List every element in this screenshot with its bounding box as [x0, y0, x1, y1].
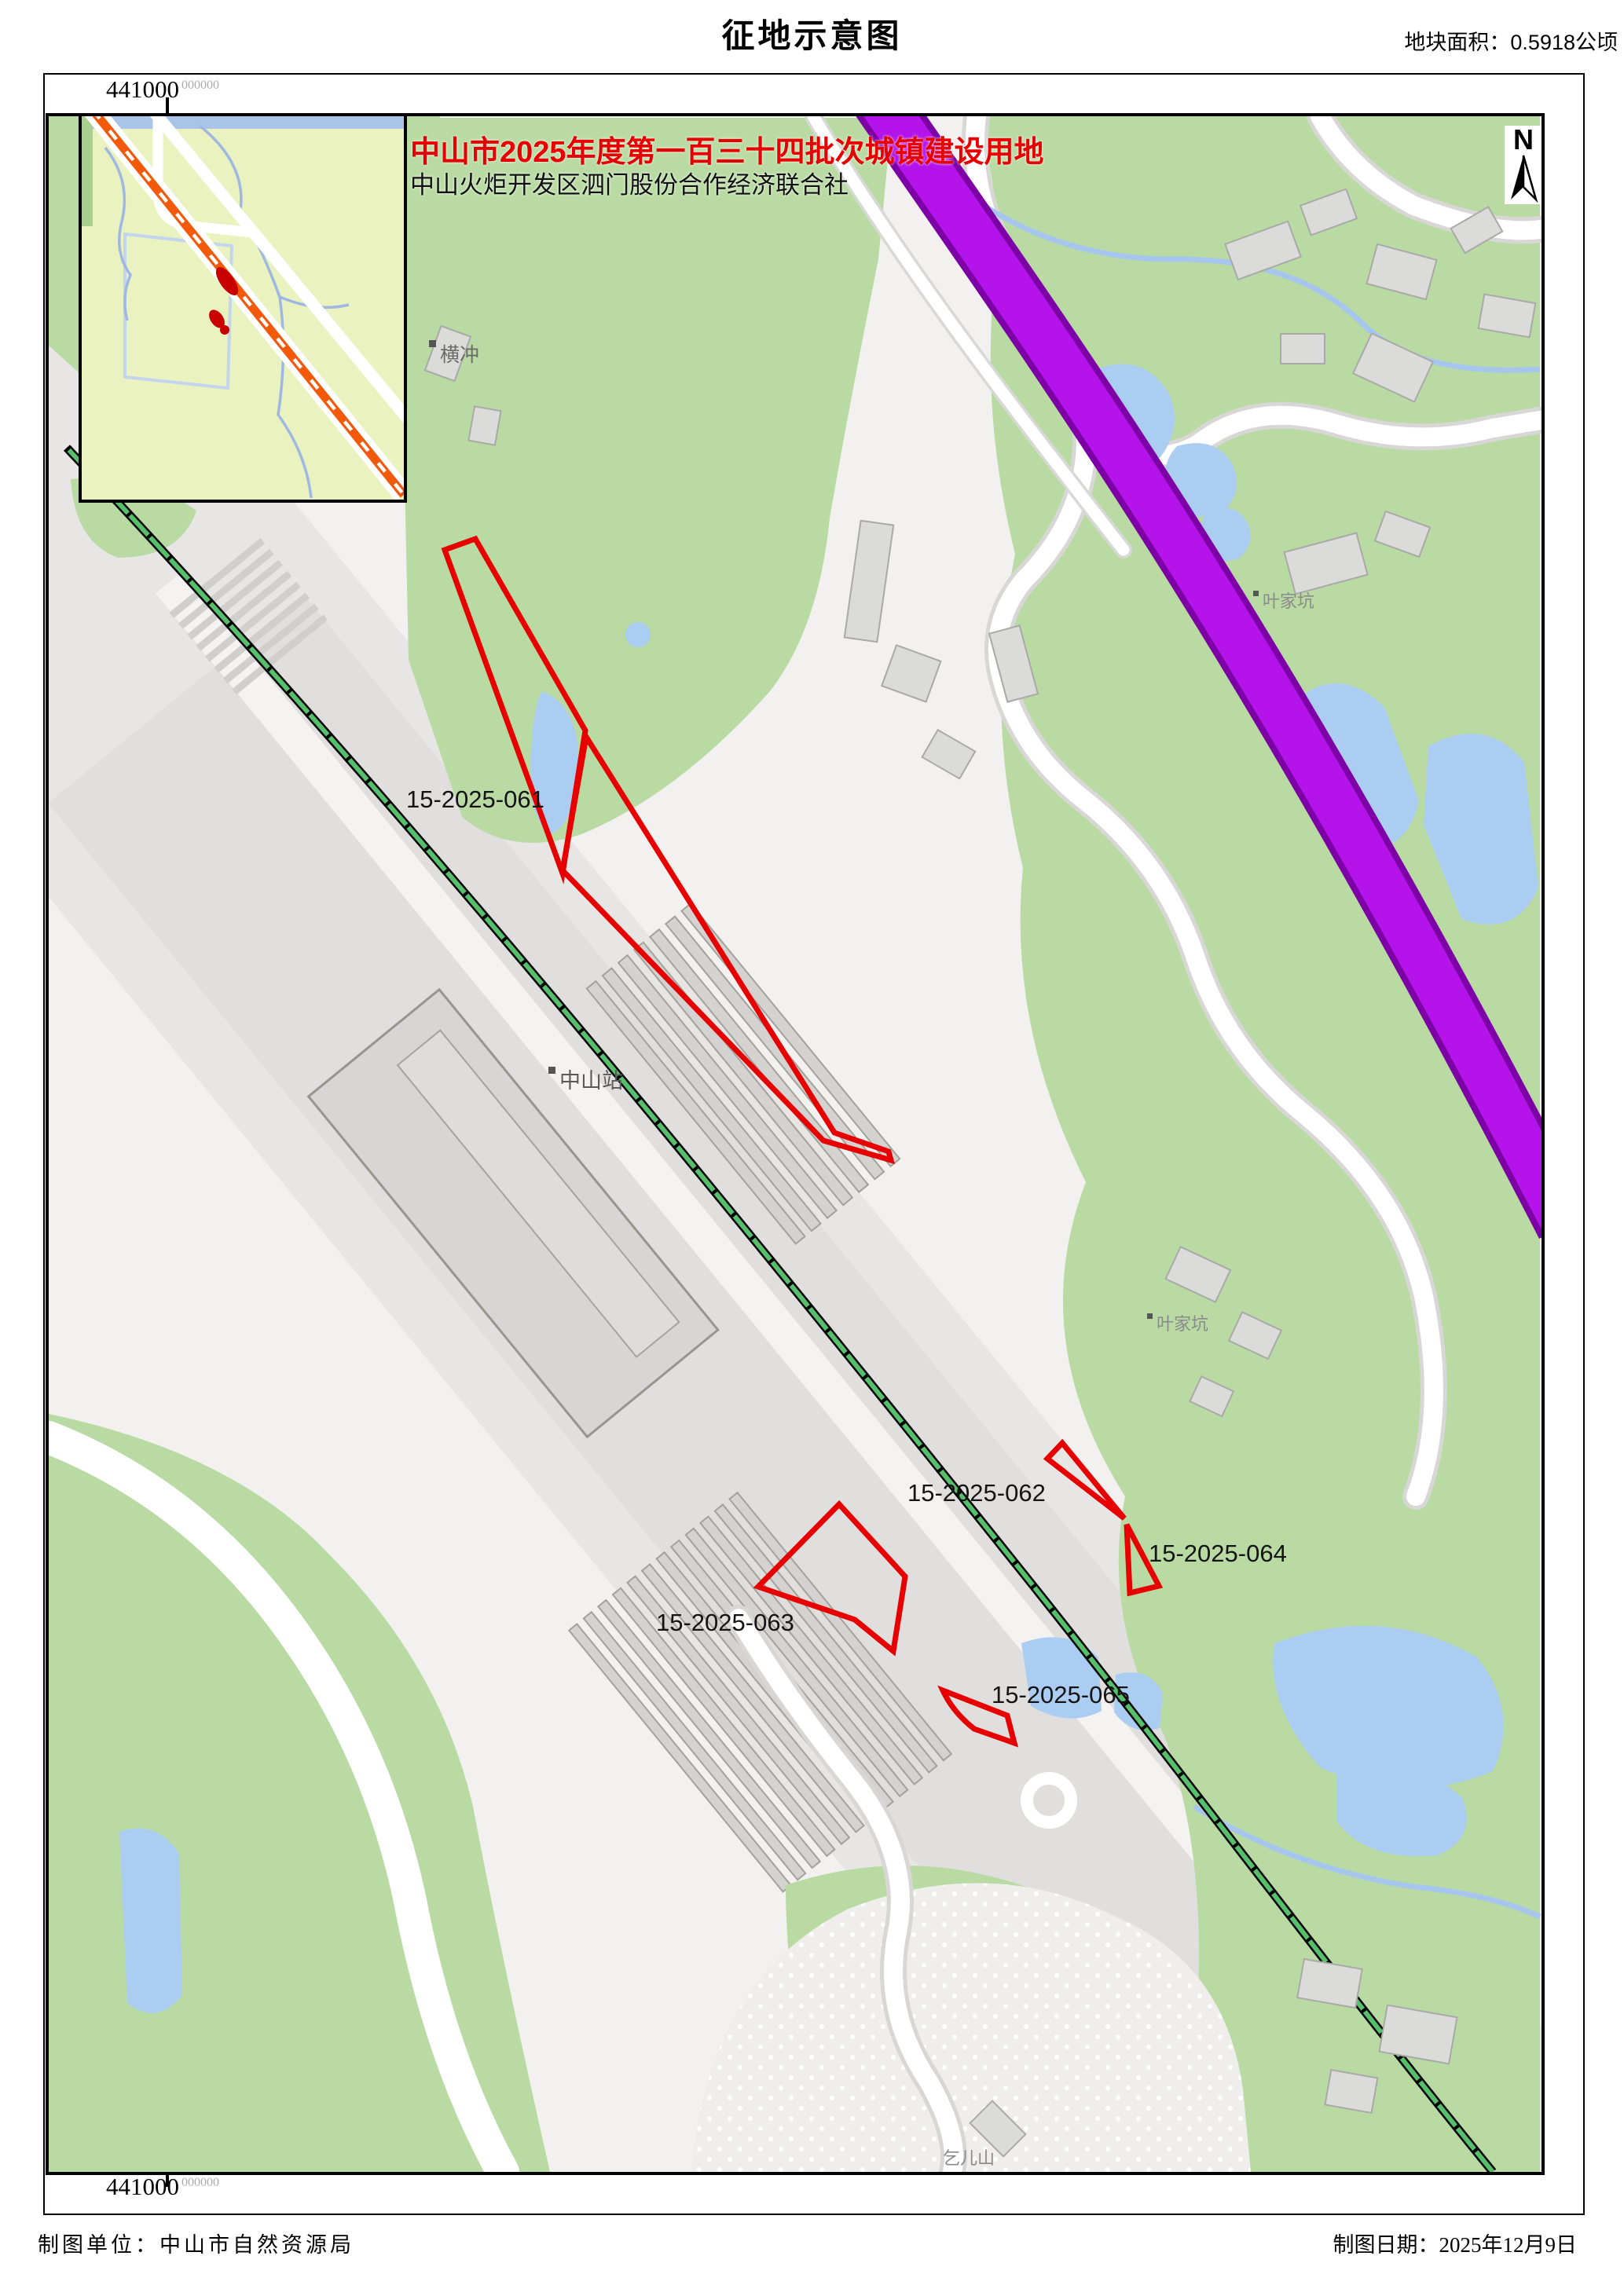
- page-title: 征地示意图: [0, 9, 1624, 57]
- parcel-label-061: 15-2025-061: [406, 785, 544, 814]
- north-arrow-icon: [1505, 154, 1542, 203]
- grid-coordinate-top: 441000000000: [106, 75, 219, 104]
- parcel-label-064: 15-2025-064: [1149, 1540, 1287, 1568]
- place-label-yejiakeng-lower: 叶家坑: [1147, 1310, 1208, 1335]
- overview-inset-map: [79, 113, 407, 503]
- parcel-area-label: 地块面积：0.5918公顷: [1404, 25, 1618, 56]
- place-marker-icon: [429, 340, 436, 347]
- place-marker-icon: [1147, 1313, 1153, 1319]
- map-date: 制图日期：2025年12月9日: [1333, 2228, 1578, 2258]
- place-label-zhongshan-station: 中山站: [548, 1064, 623, 1094]
- batch-title: 中山市2025年度第一百三十四批次城镇建设用地: [410, 127, 1044, 170]
- parcel-label-062: 15-2025-062: [907, 1479, 1046, 1507]
- north-arrow: N: [1505, 126, 1542, 204]
- overview-inset-graphics: [82, 116, 404, 500]
- parcel-label-063: 15-2025-063: [656, 1609, 794, 1637]
- place-label-qiershan: 乞儿山: [943, 2144, 995, 2170]
- place-marker-icon: [548, 1067, 555, 1074]
- cooperative-subtitle: 中山火炬开发区泗门股份合作经济联合社: [410, 165, 849, 200]
- grid-tick-top: [166, 97, 169, 113]
- grid-coordinate-bottom-decimals: 000000: [181, 2176, 219, 2189]
- parcel-label-065: 15-2025-065: [992, 1681, 1130, 1709]
- map-sheet: 征地示意图 地块面积：0.5918公顷 441000000000 4410000…: [0, 0, 1624, 2296]
- north-arrow-label: N: [1505, 126, 1542, 154]
- grid-coordinate-bottom: 441000000000: [106, 2173, 219, 2201]
- place-label-yejiakeng-upper: 叶家坑: [1253, 588, 1314, 613]
- producer-credit: 制图单位：中山市自然资源局: [38, 2228, 354, 2258]
- place-marker-icon: [1253, 591, 1259, 596]
- grid-coordinate-top-decimals: 000000: [181, 79, 219, 92]
- place-label-hengchong: 横冲: [429, 339, 479, 368]
